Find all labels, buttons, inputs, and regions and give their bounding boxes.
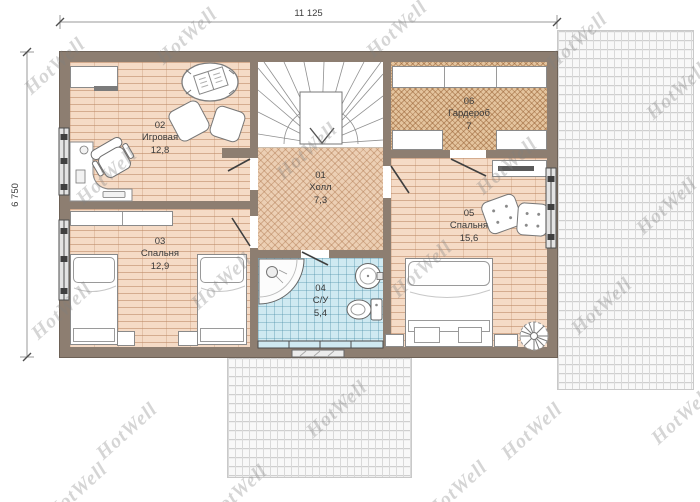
room-name: Спальня (391, 220, 547, 232)
room-number: 01 (258, 170, 383, 182)
wardrobe-shelf (70, 211, 173, 226)
foot-cushion (458, 327, 482, 343)
wall-rooms-02-03 (70, 201, 250, 209)
room-label-bathroom: 04 С/У 5,4 (258, 283, 383, 320)
room-name: Холл (258, 182, 383, 194)
room-name: Гардероб (391, 108, 547, 120)
room-name: Спальня (70, 248, 250, 260)
room-number: 05 (391, 208, 547, 220)
cabinet-ledge (94, 86, 118, 91)
nightstand (385, 334, 404, 347)
wall-hall-right-lower (383, 198, 391, 347)
roof-area-right (557, 30, 694, 390)
wall-hall-left-mid (250, 190, 258, 216)
watermark: HotWell (42, 458, 113, 502)
shelf-divider (122, 212, 123, 225)
room-area: 15,6 (391, 233, 547, 245)
nightstand (117, 331, 135, 346)
bed-foot (73, 328, 115, 342)
shelf-divider (496, 67, 497, 87)
nightstand (494, 334, 518, 347)
room-area: 12,8 (70, 145, 250, 157)
room-label-bedroom-05: 05 Спальня 15,6 (391, 208, 547, 245)
room-number: 02 (70, 120, 250, 132)
wall-hall-right-upper (383, 62, 391, 166)
wall-bath-top-right (329, 250, 383, 258)
watermark: HotWell (647, 383, 700, 450)
room-area: 12,9 (70, 261, 250, 273)
tv-stand (492, 160, 547, 177)
cabinet (70, 66, 118, 88)
room-number: 03 (70, 236, 250, 248)
wall-hall-left-upper (250, 62, 258, 158)
roof-area-bottom (227, 357, 412, 478)
room-label-playroom: 02 Игровая 12,8 (70, 120, 250, 157)
wall-rooms-06-05-left (391, 150, 450, 158)
double-bed (405, 258, 493, 347)
shelf-divider (444, 67, 445, 87)
room-label-hall: 01 Холл 7,3 (258, 170, 383, 207)
watermark: HotWell (422, 456, 493, 502)
watermark: HotWell (497, 398, 568, 465)
wardrobe-shelves-top (392, 66, 547, 88)
room-area: 5,4 (258, 308, 383, 320)
pillow (408, 261, 490, 286)
dimension-width-label: 11 125 (60, 8, 557, 19)
room-label-bedroom-03: 03 Спальня 12,9 (70, 236, 250, 273)
watermark: HotWell (92, 398, 163, 465)
wall-bath-top-left (258, 250, 301, 258)
room-label-wardrobe: 06 Гардероб 7 (391, 96, 547, 133)
room-name: Игровая (70, 132, 250, 144)
room-area: 7,3 (258, 195, 383, 207)
room-number: 04 (258, 283, 383, 295)
room-area: 7 (391, 121, 547, 133)
foot-cushion (414, 327, 440, 343)
floor-plan-canvas: 11 125 6 750 01 Холл 7,3 02 Игровая 12,8… (0, 0, 700, 502)
wall-hall-left-lower (250, 248, 258, 347)
bed-foot (200, 328, 244, 342)
tv (498, 166, 534, 171)
dimension-height-label: 6 750 (10, 165, 22, 225)
wall-rooms-06-05-right (486, 150, 547, 158)
nightstand (178, 331, 198, 346)
room-number: 06 (391, 96, 547, 108)
room-name: С/У (258, 295, 383, 307)
